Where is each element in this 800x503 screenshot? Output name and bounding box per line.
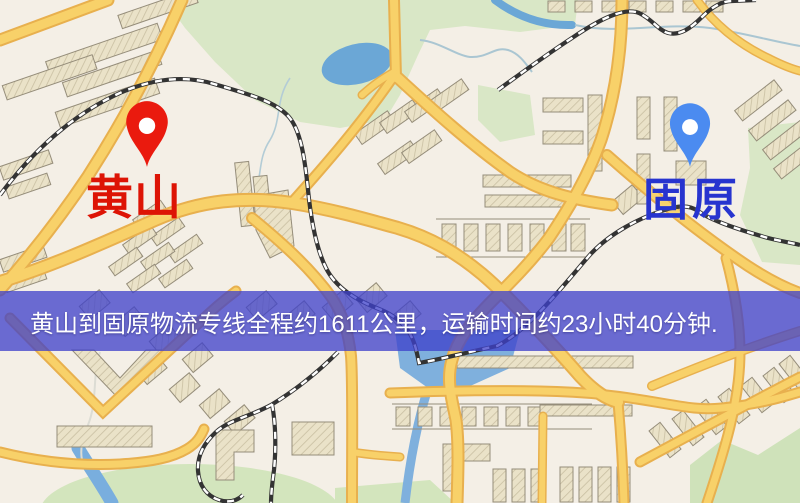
map-canvas <box>0 0 800 503</box>
origin-pin-hole <box>139 118 155 134</box>
destination-pin-icon[interactable] <box>662 101 718 169</box>
route-info-text: 黄山到固原物流专线全程约1611公里，运输时间约23小时40分钟. <box>0 304 718 339</box>
destination-city-label: 固原 <box>643 178 741 223</box>
destination-pin-shape <box>670 103 710 166</box>
origin-pin-shape <box>126 101 168 167</box>
destination-pin-hole <box>682 119 698 135</box>
route-info-banner: 黄山到固原物流专线全程约1611公里，运输时间约23小时40分钟. <box>0 291 800 351</box>
origin-pin-icon[interactable] <box>118 99 176 169</box>
origin-city-label: 黄山 <box>86 176 182 223</box>
map-container[interactable]: 黄山 固原 黄山到固原物流专线全程约1611公里，运输时间约23小时40分钟. <box>0 0 800 503</box>
